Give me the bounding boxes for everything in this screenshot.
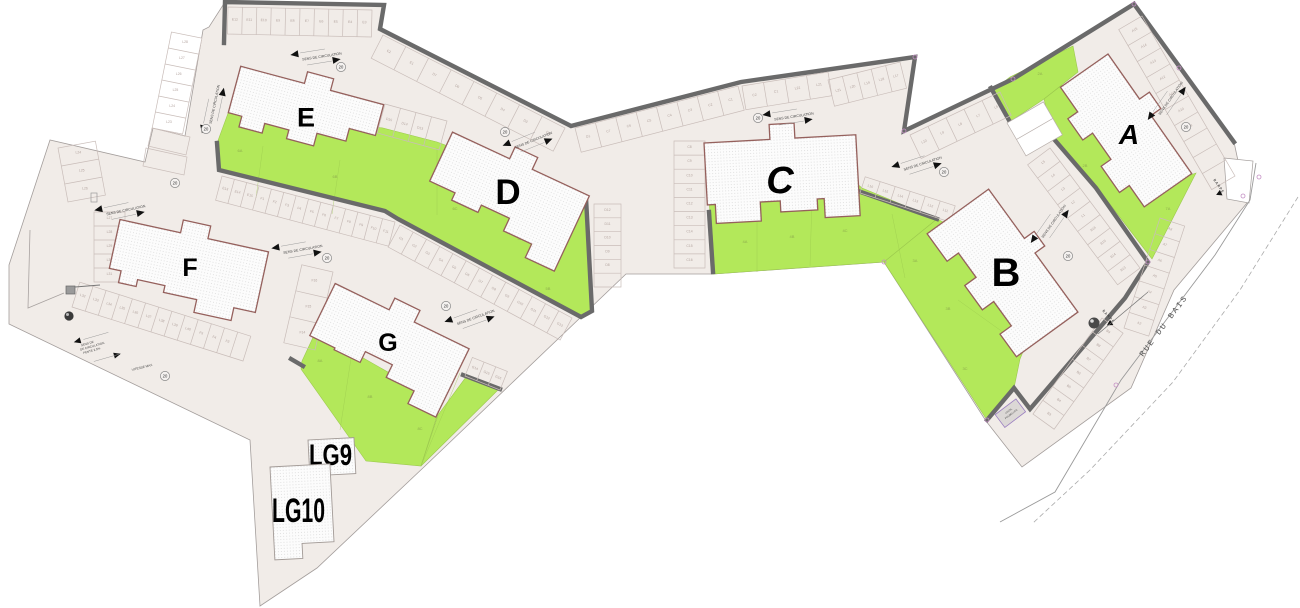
- svg-text:E12: E12: [232, 18, 238, 22]
- svg-text:6A: 6A: [238, 148, 243, 153]
- svg-text:8A: 8A: [318, 358, 323, 363]
- svg-text:E9: E9: [276, 18, 280, 22]
- svg-text:C8: C8: [687, 145, 691, 149]
- svg-text:A: A: [1118, 119, 1139, 150]
- svg-text:E8: E8: [290, 19, 294, 23]
- svg-text:C2: C2: [752, 93, 757, 98]
- svg-text:20: 20: [339, 65, 344, 70]
- svg-text:20: 20: [204, 127, 209, 132]
- svg-text:4B: 4B: [790, 234, 795, 239]
- svg-text:C9: C9: [687, 159, 691, 163]
- svg-text:L27: L27: [179, 56, 185, 60]
- svg-text:L29: L29: [107, 244, 113, 248]
- svg-text:C12: C12: [686, 202, 692, 206]
- svg-text:D10: D10: [604, 236, 610, 240]
- svg-text:3B: 3B: [946, 306, 951, 311]
- svg-text:20: 20: [1066, 254, 1071, 259]
- svg-text:L25: L25: [79, 169, 85, 173]
- svg-text:2A: 2A: [1038, 71, 1043, 76]
- svg-text:L24: L24: [75, 151, 81, 155]
- svg-text:C15: C15: [686, 244, 692, 248]
- svg-text:E10: E10: [261, 18, 267, 22]
- svg-text:3C: 3C: [962, 366, 967, 371]
- svg-text:C11: C11: [687, 187, 693, 191]
- svg-text:20: 20: [1184, 125, 1189, 130]
- svg-text:C: C: [766, 160, 794, 202]
- svg-text:8C: 8C: [417, 426, 422, 431]
- svg-text:2B: 2B: [1083, 163, 1088, 168]
- svg-text:D12: D12: [604, 208, 610, 212]
- svg-text:5B: 5B: [546, 286, 551, 291]
- svg-text:8B: 8B: [368, 394, 373, 399]
- svg-text:20: 20: [503, 130, 508, 135]
- svg-text:LG10: LG10: [272, 492, 325, 530]
- svg-text:6C: 6C: [452, 206, 457, 211]
- svg-text:C16: C16: [686, 258, 692, 262]
- svg-text:4C: 4C: [842, 228, 847, 233]
- svg-text:3A: 3A: [913, 258, 918, 263]
- svg-text:D11: D11: [605, 222, 611, 226]
- svg-text:20: 20: [942, 170, 947, 175]
- svg-text:20: 20: [444, 304, 449, 309]
- svg-text:E11: E11: [246, 18, 252, 22]
- svg-text:6B: 6B: [333, 174, 338, 179]
- svg-text:L28: L28: [107, 230, 113, 234]
- svg-text:F15: F15: [305, 304, 311, 308]
- svg-text:B: B: [992, 251, 1021, 295]
- svg-text:E4: E4: [348, 20, 352, 24]
- svg-text:7A: 7A: [1166, 206, 1171, 211]
- svg-text:L26: L26: [82, 187, 88, 191]
- svg-text:C10: C10: [686, 173, 692, 177]
- svg-text:L25: L25: [173, 88, 179, 92]
- svg-text:C13: C13: [686, 216, 692, 220]
- svg-text:C1: C1: [774, 89, 779, 94]
- svg-text:L28: L28: [182, 40, 188, 44]
- svg-text:E: E: [297, 103, 315, 133]
- svg-text:20: 20: [163, 374, 168, 379]
- svg-text:E7: E7: [305, 19, 309, 23]
- svg-text:D9: D9: [605, 249, 609, 253]
- svg-text:G: G: [378, 329, 397, 357]
- svg-text:4A: 4A: [743, 239, 748, 244]
- svg-text:D: D: [495, 173, 520, 212]
- svg-text:F16: F16: [311, 278, 317, 282]
- svg-text:20: 20: [325, 256, 330, 261]
- svg-text:E5: E5: [334, 20, 338, 24]
- svg-text:L26: L26: [176, 72, 182, 76]
- svg-text:L31: L31: [107, 272, 113, 276]
- svg-text:E6: E6: [319, 19, 323, 23]
- svg-text:F14: F14: [299, 330, 305, 334]
- svg-text:20: 20: [173, 181, 178, 186]
- svg-text:D8: D8: [605, 263, 609, 267]
- svg-text:L24: L24: [169, 104, 175, 108]
- svg-text:20: 20: [756, 116, 761, 121]
- svg-text:F: F: [182, 254, 197, 282]
- svg-text:L23: L23: [166, 120, 172, 124]
- svg-text:E3: E3: [362, 20, 366, 24]
- svg-text:C14: C14: [686, 230, 692, 234]
